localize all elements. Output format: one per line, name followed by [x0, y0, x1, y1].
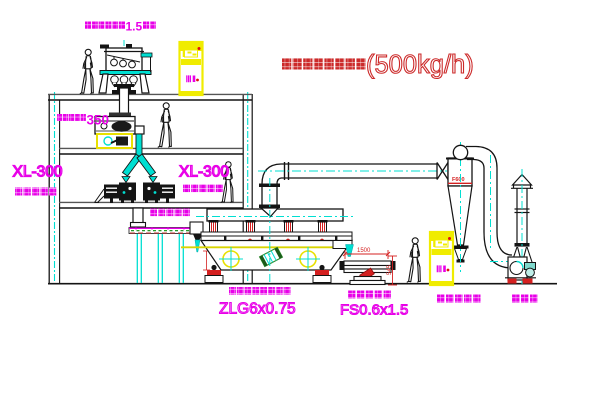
- svg-text:XL-300: XL-300: [13, 164, 63, 181]
- svg-text:1500: 1500: [357, 248, 371, 254]
- svg-text:545: 545: [387, 264, 393, 275]
- svg-text:1.5: 1.5: [126, 20, 143, 34]
- svg-text:XL-300: XL-300: [179, 164, 229, 181]
- svg-text:F600: F600: [452, 177, 465, 183]
- svg-text:FS0.6x1.5: FS0.6x1.5: [340, 302, 408, 319]
- svg-text:(500kg/h): (500kg/h): [366, 51, 474, 79]
- svg-text:350: 350: [87, 113, 110, 128]
- svg-text:ZLG6x0.75: ZLG6x0.75: [219, 301, 296, 318]
